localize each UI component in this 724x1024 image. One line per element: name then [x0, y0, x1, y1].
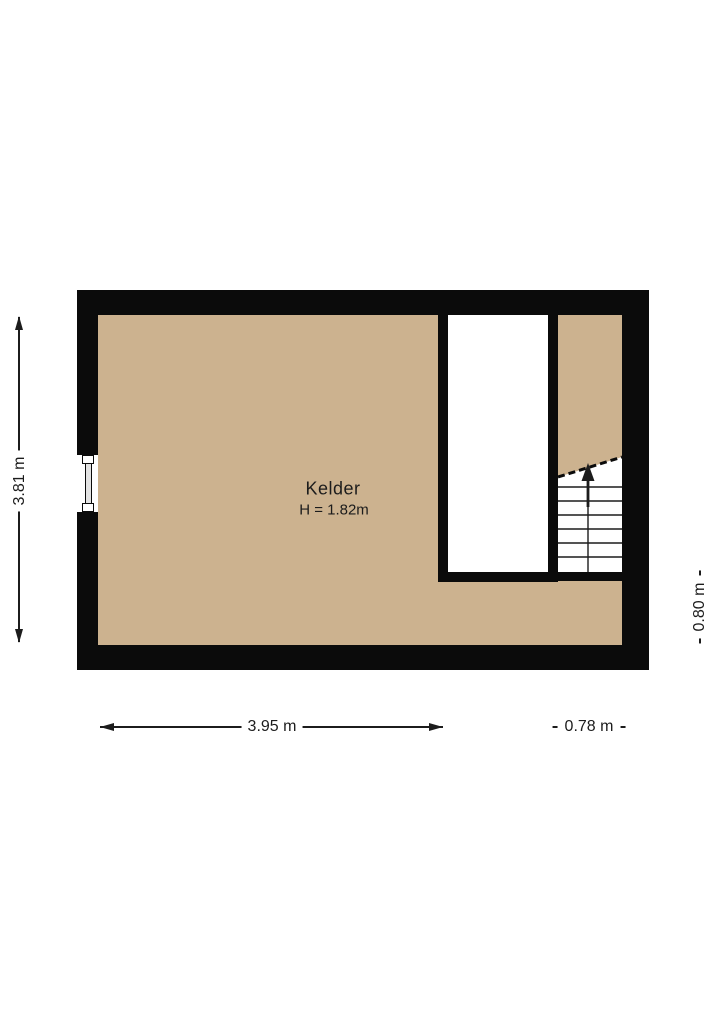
dimension-label-room-height: 3.81 m [11, 451, 29, 512]
arrowhead-up-icon [15, 316, 23, 330]
window-opening [77, 455, 98, 512]
arrowhead-down-icon [15, 629, 23, 643]
floorplan-page: Kelder H = 1.82m 3.81 m 3.95 m 0.78 m 0.… [0, 0, 724, 1024]
staircase [558, 315, 622, 572]
room-height-label: H = 1.82m [299, 502, 369, 519]
dimension-label-room-width: 3.95 m [242, 718, 303, 736]
arrowhead-left-icon [100, 723, 114, 731]
dimension-text: 0.80 m [691, 583, 709, 632]
window-glazing [85, 464, 92, 503]
dimension-label-stairs-depth: 0.80 m [691, 571, 709, 644]
window-jamb-top [82, 455, 94, 464]
tick-mark-icon [699, 638, 701, 643]
dimension-label-stairs-width: 0.78 m [553, 718, 626, 736]
floorplan-basement [77, 290, 649, 670]
stairs-arrow-shaft [587, 479, 590, 507]
window-jamb-bottom [82, 503, 94, 512]
dimension-text: 0.78 m [565, 718, 614, 736]
room-name-label: Kelder [305, 479, 360, 500]
tick-mark-icon [553, 726, 558, 728]
stairwell-void-opening [448, 315, 548, 572]
tick-mark-icon [699, 571, 701, 576]
arrowhead-right-icon [429, 723, 443, 731]
stairs-bottom-wall [558, 572, 622, 581]
tick-mark-icon [620, 726, 625, 728]
stairwell-void-wall [438, 315, 558, 582]
